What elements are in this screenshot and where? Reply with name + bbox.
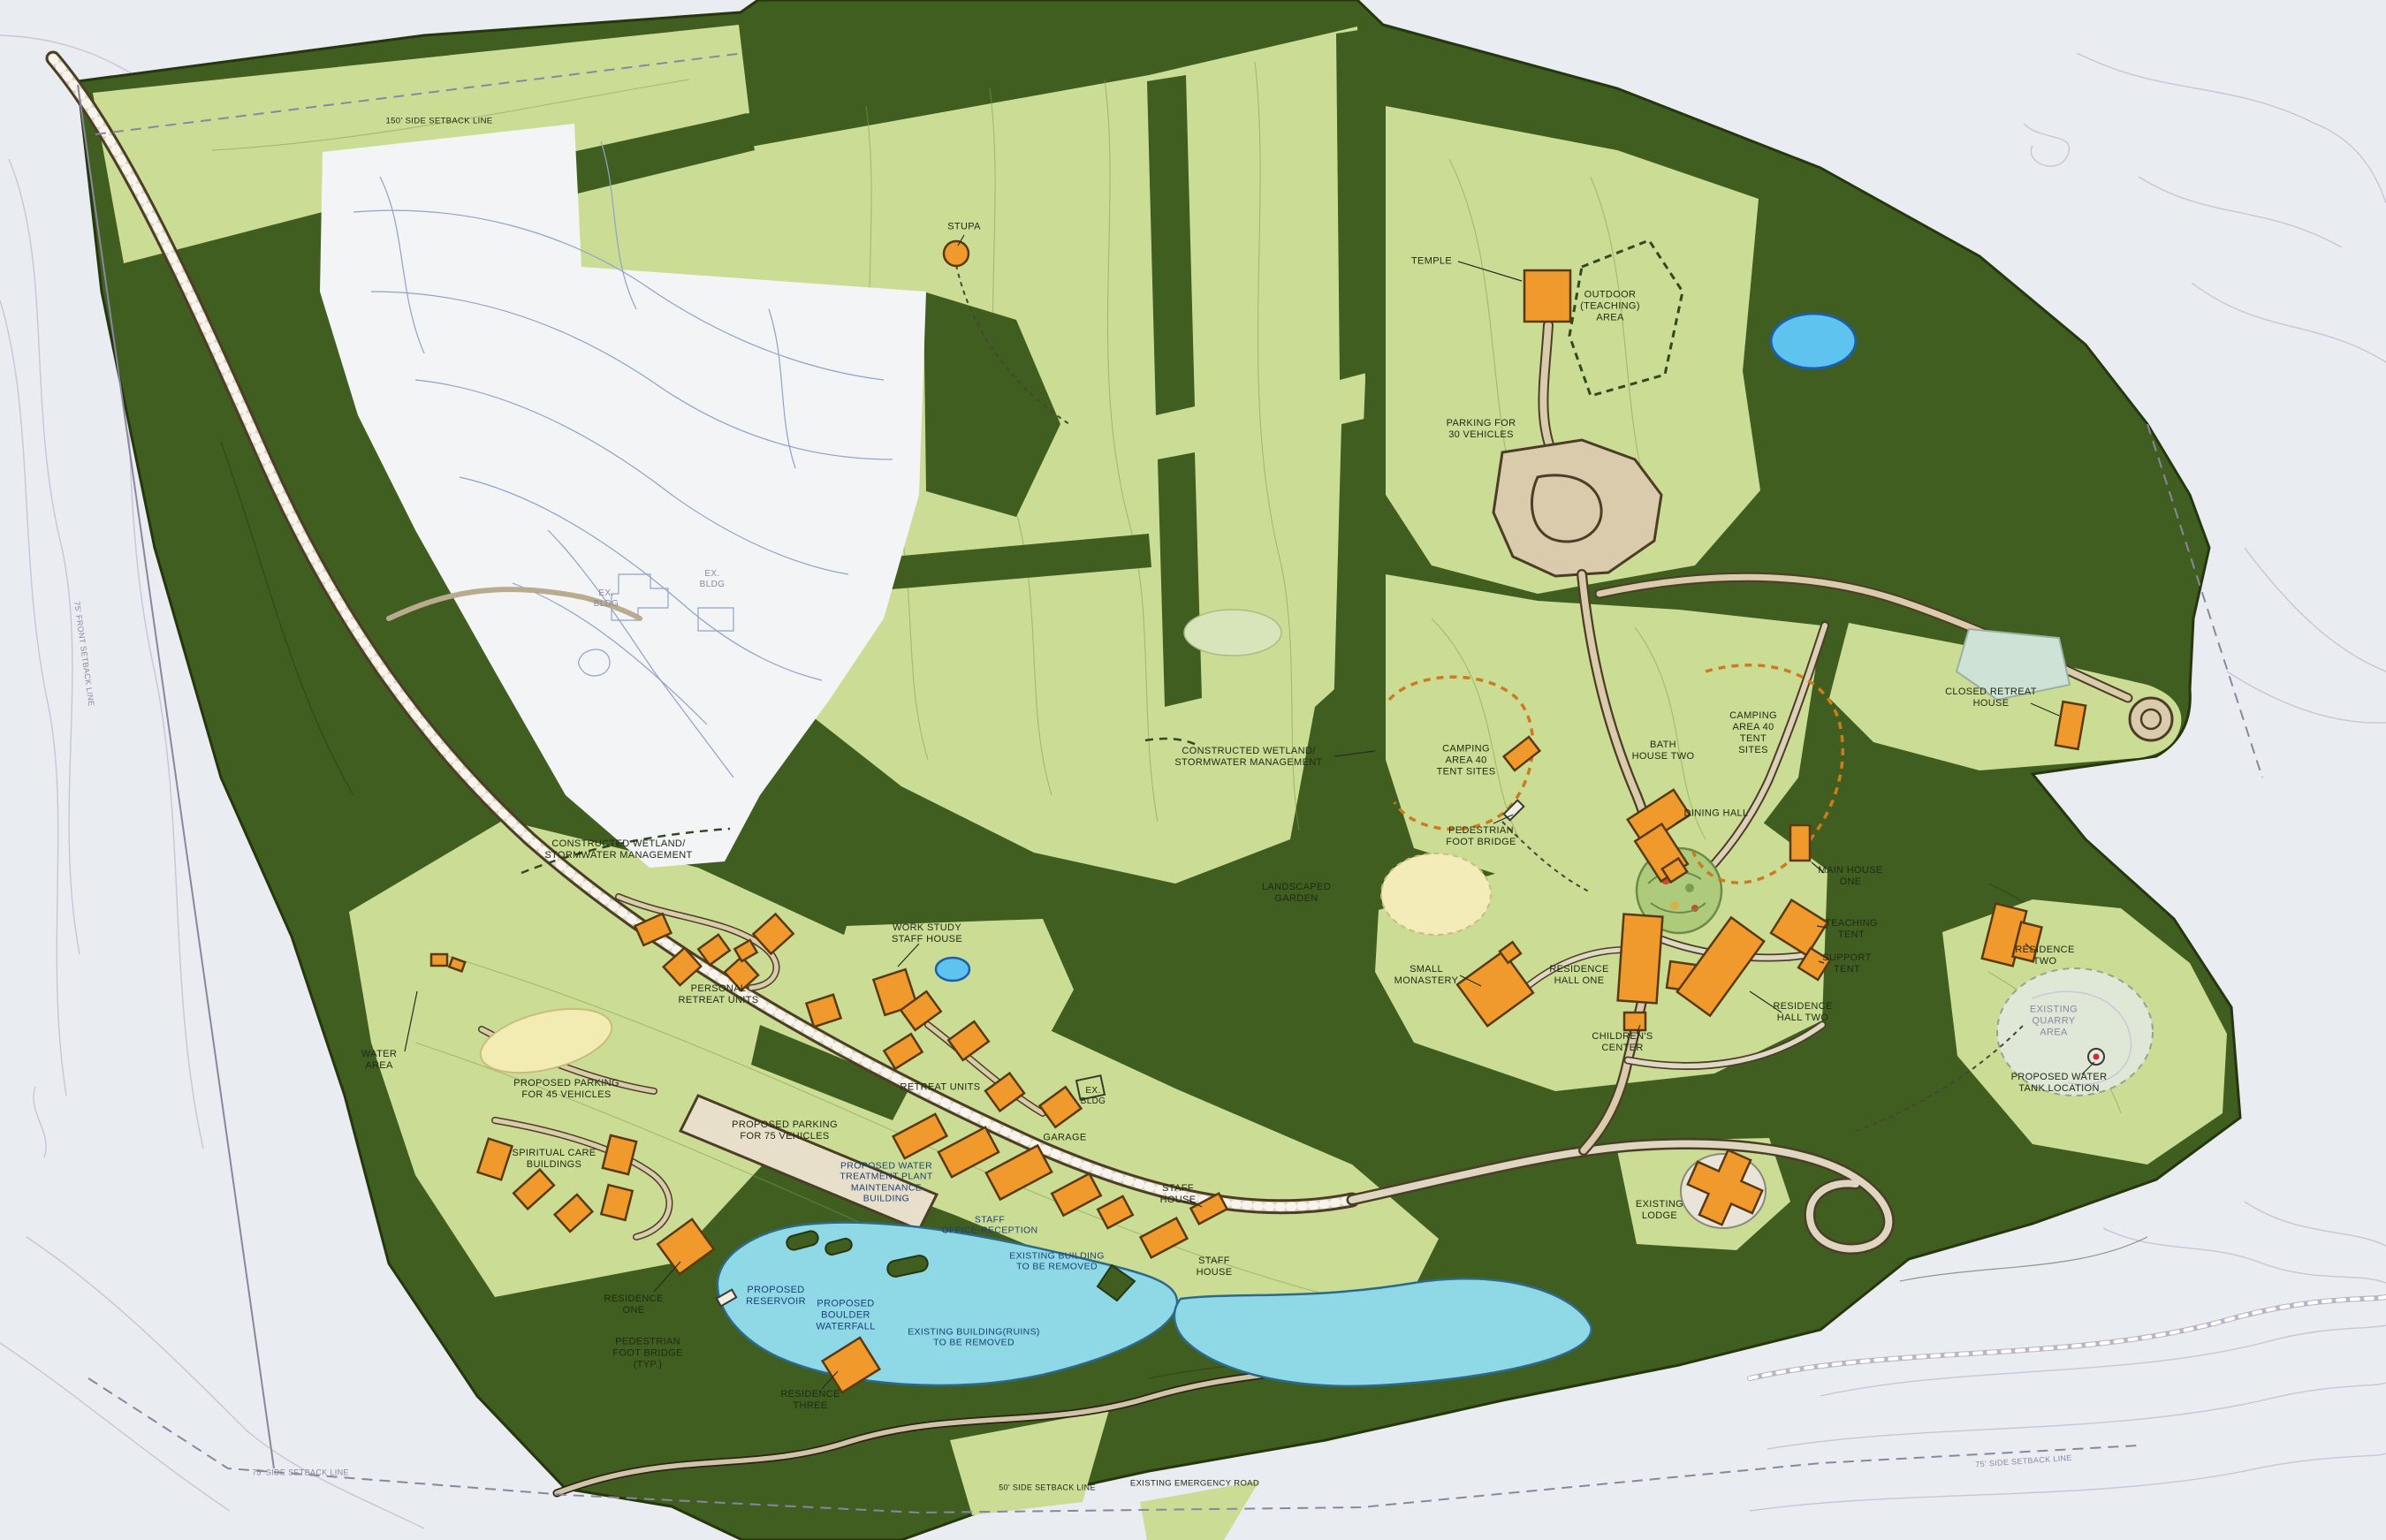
temple-pond (1771, 314, 1856, 368)
work-study-pond (936, 958, 969, 981)
residence-hall-one-building (1618, 914, 1663, 1004)
site-plan-map: 150' SIDE SETBACK LINESTUPATEMPLEOUTDOOR… (0, 0, 2386, 1540)
main-house-one-building (1790, 825, 1810, 861)
garden-oval (1381, 853, 1491, 935)
temple-building (1524, 270, 1570, 322)
site-plan-canvas (0, 0, 2386, 1540)
water-tank-symbol (2088, 1049, 2104, 1065)
pale-pond-center (1184, 610, 1281, 656)
childrens-center-building (1624, 1013, 1645, 1030)
stupa-marker (944, 241, 969, 266)
